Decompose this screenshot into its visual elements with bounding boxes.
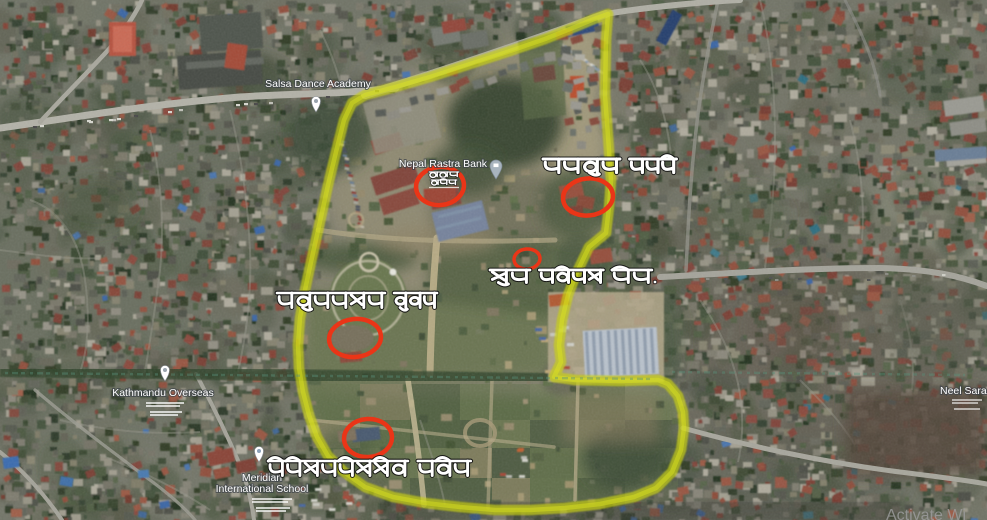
svg-text:Salsa Dance Academy: Salsa Dance Academy: [265, 78, 371, 90]
svg-text:Activate Wi: Activate Wi: [886, 507, 966, 520]
svg-text:Kathmandu Overseas: Kathmandu Overseas: [112, 387, 214, 399]
svg-text:International School: International School: [216, 483, 309, 495]
svg-text:Neel Saraswati: Neel Saraswati: [940, 385, 987, 397]
svg-text:Nepal Rastra Bank: Nepal Rastra Bank: [399, 158, 488, 170]
